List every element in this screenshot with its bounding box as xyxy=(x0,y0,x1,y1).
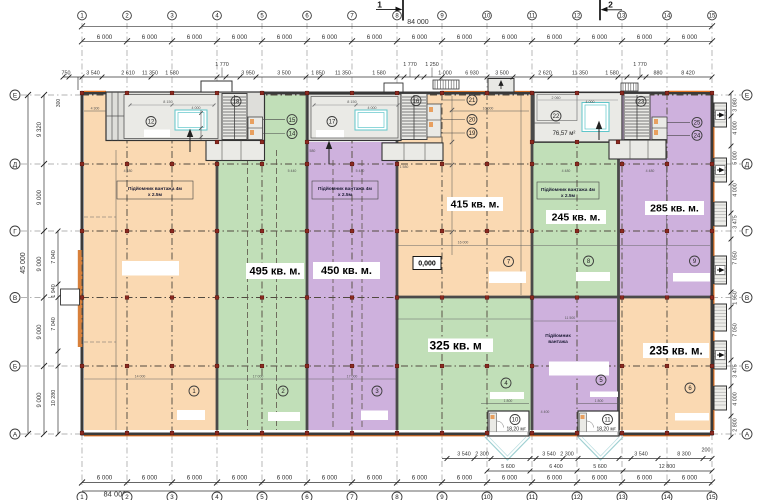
svg-text:11: 11 xyxy=(604,418,611,424)
svg-text:Б: Б xyxy=(745,363,749,370)
svg-text:Підйомник вантажа 4м: Підйомник вантажа 4м xyxy=(541,186,595,193)
svg-text:15: 15 xyxy=(289,118,296,124)
svg-text:1 770: 1 770 xyxy=(215,62,229,68)
svg-text:Е: Е xyxy=(13,92,18,99)
svg-text:2 300: 2 300 xyxy=(475,452,489,458)
svg-text:1 940: 1 940 xyxy=(51,284,57,298)
svg-text:Підйомник вантажа 4м: Підйомник вантажа 4м xyxy=(318,185,372,192)
svg-text:х 2.5м: х 2.5м xyxy=(148,192,163,198)
svg-text:4 400: 4 400 xyxy=(541,410,550,414)
svg-text:325 кв. м: 325 кв. м xyxy=(430,339,482,353)
svg-text:14: 14 xyxy=(289,132,296,138)
svg-text:6 000: 6 000 xyxy=(547,475,563,482)
svg-text:х 2.5м: х 2.5м xyxy=(561,193,576,199)
svg-text:6 000: 6 000 xyxy=(457,475,473,482)
svg-text:1 250: 1 250 xyxy=(425,62,439,68)
svg-text:5 600: 5 600 xyxy=(593,464,607,470)
svg-text:5 600: 5 600 xyxy=(501,464,515,470)
svg-text:Д: Д xyxy=(13,161,18,168)
svg-text:4 000: 4 000 xyxy=(586,100,595,104)
svg-text:х 2.5м: х 2.5м xyxy=(338,192,353,198)
svg-text:7 040: 7 040 xyxy=(51,317,57,331)
svg-text:3 475: 3 475 xyxy=(733,364,739,378)
svg-text:11 350: 11 350 xyxy=(572,71,588,77)
svg-text:23: 23 xyxy=(638,99,645,105)
svg-text:4 000: 4 000 xyxy=(733,183,739,197)
svg-text:6 000: 6 000 xyxy=(502,34,518,41)
svg-text:6 000: 6 000 xyxy=(232,475,248,482)
svg-text:3 500: 3 500 xyxy=(495,71,509,77)
svg-text:6 000: 6 000 xyxy=(637,475,653,482)
svg-text:6 000: 6 000 xyxy=(457,34,473,41)
svg-text:11: 11 xyxy=(529,14,536,20)
svg-text:8: 8 xyxy=(395,494,399,500)
svg-text:10: 10 xyxy=(484,14,491,20)
svg-text:18,20 м²: 18,20 м² xyxy=(596,426,615,432)
svg-text:6 000: 6 000 xyxy=(322,475,338,482)
svg-text:6 000: 6 000 xyxy=(187,475,203,482)
svg-text:9 000: 9 000 xyxy=(37,324,43,340)
svg-text:13: 13 xyxy=(619,14,626,20)
svg-text:3 540: 3 540 xyxy=(542,452,556,458)
svg-text:3 540: 3 540 xyxy=(457,452,471,458)
svg-text:Д: Д xyxy=(745,161,750,168)
svg-text:15: 15 xyxy=(709,494,716,500)
svg-text:7 050: 7 050 xyxy=(733,323,739,337)
svg-text:Г: Г xyxy=(13,228,17,235)
svg-text:235 кв. м.: 235 кв. м. xyxy=(649,345,702,357)
svg-text:5 440: 5 440 xyxy=(356,169,365,173)
svg-text:6 000: 6 000 xyxy=(187,34,203,41)
svg-text:76,57 м²: 76,57 м² xyxy=(553,131,576,137)
svg-text:4 480: 4 480 xyxy=(562,169,571,173)
svg-text:9 000: 9 000 xyxy=(37,189,43,205)
svg-text:7 050: 7 050 xyxy=(733,251,739,265)
svg-text:200: 200 xyxy=(702,448,711,454)
svg-text:11 500: 11 500 xyxy=(565,316,575,320)
svg-text:6 000: 6 000 xyxy=(682,475,698,482)
svg-text:6 000: 6 000 xyxy=(412,475,428,482)
svg-text:880: 880 xyxy=(654,71,663,77)
svg-text:1: 1 xyxy=(80,494,84,500)
svg-text:0,000: 0,000 xyxy=(418,261,436,268)
svg-text:18,20 м²: 18,20 м² xyxy=(506,426,525,432)
svg-text:11 350: 11 350 xyxy=(335,71,351,77)
svg-text:6 000: 6 000 xyxy=(277,475,293,482)
svg-text:8 150: 8 150 xyxy=(163,100,173,104)
svg-text:8 150: 8 150 xyxy=(347,100,357,104)
svg-text:6 000: 6 000 xyxy=(682,34,698,41)
svg-text:14 000: 14 000 xyxy=(135,375,146,379)
svg-text:45 000: 45 000 xyxy=(20,252,27,274)
svg-text:10 280: 10 280 xyxy=(51,390,57,407)
svg-text:6 000: 6 000 xyxy=(232,34,248,41)
svg-text:5: 5 xyxy=(260,494,264,500)
svg-text:1 770: 1 770 xyxy=(403,62,417,68)
svg-text:245 кв. м.: 245 кв. м. xyxy=(552,212,601,224)
svg-text:7: 7 xyxy=(350,494,354,500)
svg-text:16: 16 xyxy=(413,99,420,105)
svg-text:В: В xyxy=(745,295,749,302)
svg-text:Е: Е xyxy=(745,92,750,99)
svg-text:5 000: 5 000 xyxy=(733,151,739,165)
svg-text:Підйомник вантажа 4м: Підйомник вантажа 4м xyxy=(128,185,182,192)
svg-text:750: 750 xyxy=(62,71,71,77)
svg-text:20: 20 xyxy=(469,118,476,124)
svg-text:6 000: 6 000 xyxy=(412,34,428,41)
svg-text:6 400: 6 400 xyxy=(549,464,563,470)
svg-text:1 850: 1 850 xyxy=(311,71,325,77)
svg-text:15: 15 xyxy=(709,14,716,20)
svg-text:4 480: 4 480 xyxy=(124,169,133,173)
svg-text:6 000: 6 000 xyxy=(142,475,158,482)
svg-text:5 440: 5 440 xyxy=(288,169,297,173)
svg-text:1 770: 1 770 xyxy=(633,62,647,68)
svg-text:24: 24 xyxy=(694,133,701,139)
svg-text:4 300: 4 300 xyxy=(91,107,100,111)
svg-text:1 580: 1 580 xyxy=(400,165,409,169)
svg-text:19: 19 xyxy=(469,131,476,137)
svg-text:8 300: 8 300 xyxy=(677,452,691,458)
svg-text:450 кв. м.: 450 кв. м. xyxy=(321,265,372,277)
svg-text:6 000: 6 000 xyxy=(367,34,383,41)
svg-text:6: 6 xyxy=(305,494,309,500)
svg-text:7 040: 7 040 xyxy=(51,250,57,264)
svg-text:12: 12 xyxy=(148,120,155,126)
svg-text:14: 14 xyxy=(664,14,671,20)
svg-text:3 950: 3 950 xyxy=(241,71,255,77)
svg-text:84 000: 84 000 xyxy=(407,19,429,26)
svg-text:6 000: 6 000 xyxy=(637,34,653,41)
svg-text:6 000: 6 000 xyxy=(547,34,563,41)
svg-text:2: 2 xyxy=(125,494,129,500)
svg-text:3 500: 3 500 xyxy=(277,71,291,77)
svg-text:4 480: 4 480 xyxy=(646,169,655,173)
svg-text:10 000: 10 000 xyxy=(483,107,494,111)
svg-text:Підйомник: Підйомник xyxy=(545,332,571,339)
svg-text:12: 12 xyxy=(574,494,581,500)
svg-text:9 000: 9 000 xyxy=(37,256,43,272)
svg-text:3 475: 3 475 xyxy=(733,215,739,229)
svg-text:300: 300 xyxy=(56,99,62,108)
svg-text:Б: Б xyxy=(13,363,17,370)
svg-text:1 800: 1 800 xyxy=(504,399,513,403)
svg-text:В: В xyxy=(13,295,17,302)
svg-text:12 800: 12 800 xyxy=(659,464,676,470)
svg-text:18: 18 xyxy=(233,99,240,105)
svg-text:3: 3 xyxy=(170,494,174,500)
svg-text:1: 1 xyxy=(377,0,382,10)
svg-text:1 580: 1 580 xyxy=(372,71,386,77)
svg-text:2 060: 2 060 xyxy=(552,96,561,100)
svg-text:2 610: 2 610 xyxy=(121,71,135,77)
svg-text:415 кв. м.: 415 кв. м. xyxy=(451,199,500,211)
svg-text:10: 10 xyxy=(484,494,491,500)
svg-text:6 000: 6 000 xyxy=(277,34,293,41)
svg-text:4 000: 4 000 xyxy=(733,121,739,135)
svg-text:6 000: 6 000 xyxy=(142,34,158,41)
svg-text:6 000: 6 000 xyxy=(322,34,338,41)
svg-text:4 000: 4 000 xyxy=(368,106,377,110)
svg-text:11: 11 xyxy=(529,494,536,500)
svg-text:А: А xyxy=(13,431,18,438)
svg-text:22: 22 xyxy=(553,114,560,120)
svg-text:6 000: 6 000 xyxy=(367,475,383,482)
svg-text:17 000: 17 000 xyxy=(253,375,264,379)
svg-text:2 800: 2 800 xyxy=(733,418,739,432)
svg-text:2: 2 xyxy=(608,0,613,10)
svg-text:3 540: 3 540 xyxy=(86,71,100,77)
svg-text:3 080: 3 080 xyxy=(733,98,739,112)
svg-text:25: 25 xyxy=(694,121,701,127)
svg-text:495 кв. м.: 495 кв. м. xyxy=(250,266,301,278)
svg-text:Г: Г xyxy=(745,228,749,235)
svg-text:1 800: 1 800 xyxy=(595,399,604,403)
svg-text:1 580: 1 580 xyxy=(605,71,619,77)
svg-text:1 000: 1 000 xyxy=(438,71,452,77)
svg-text:6 000: 6 000 xyxy=(592,475,608,482)
svg-text:21: 21 xyxy=(469,98,476,104)
svg-text:3 540: 3 540 xyxy=(634,452,648,458)
svg-text:8 420: 8 420 xyxy=(681,71,695,77)
svg-text:9 000: 9 000 xyxy=(37,392,43,408)
svg-text:6 000: 6 000 xyxy=(502,475,518,482)
svg-text:10: 10 xyxy=(512,418,519,424)
svg-text:285 кв. м.: 285 кв. м. xyxy=(650,203,699,215)
svg-text:2 300: 2 300 xyxy=(560,452,574,458)
svg-text:6 930: 6 930 xyxy=(465,71,479,77)
svg-text:А: А xyxy=(745,431,750,438)
svg-text:1 950: 1 950 xyxy=(733,291,739,305)
svg-text:вантажа: вантажа xyxy=(548,340,568,345)
svg-text:1 580: 1 580 xyxy=(307,149,316,153)
svg-text:17: 17 xyxy=(329,120,336,126)
svg-text:9 320: 9 320 xyxy=(37,121,43,137)
svg-text:14: 14 xyxy=(664,494,671,500)
svg-text:4 000: 4 000 xyxy=(192,106,201,110)
svg-text:2 620: 2 620 xyxy=(538,71,552,77)
svg-text:12: 12 xyxy=(574,14,581,20)
svg-text:6 000: 6 000 xyxy=(97,475,113,482)
svg-text:9: 9 xyxy=(440,494,444,500)
svg-text:6 000: 6 000 xyxy=(97,34,113,41)
svg-text:4 000: 4 000 xyxy=(733,392,739,406)
svg-text:4: 4 xyxy=(215,494,219,500)
svg-text:17 000: 17 000 xyxy=(347,375,358,379)
svg-text:6 000: 6 000 xyxy=(592,34,608,41)
svg-text:16 000: 16 000 xyxy=(458,241,469,245)
svg-text:13: 13 xyxy=(619,494,626,500)
svg-text:1 580: 1 580 xyxy=(165,71,179,77)
svg-text:11 350: 11 350 xyxy=(142,71,158,77)
